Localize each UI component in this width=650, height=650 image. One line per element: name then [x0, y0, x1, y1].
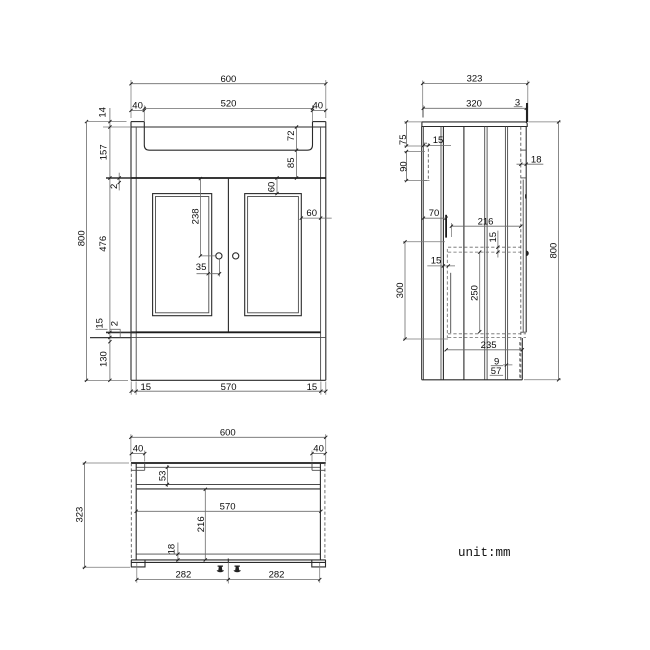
svg-text:282: 282: [175, 570, 191, 581]
svg-text:15: 15: [141, 382, 152, 393]
svg-text:323: 323: [467, 73, 483, 84]
svg-text:800: 800: [76, 230, 87, 246]
svg-text:800: 800: [548, 243, 559, 259]
svg-text:75: 75: [398, 135, 409, 146]
svg-text:570: 570: [221, 382, 237, 393]
svg-text:216: 216: [196, 516, 207, 532]
svg-text:157: 157: [99, 144, 110, 160]
svg-text:320: 320: [466, 98, 482, 109]
svg-text:60: 60: [306, 208, 317, 219]
svg-text:600: 600: [220, 74, 236, 85]
svg-text:15: 15: [488, 232, 499, 243]
svg-text:15: 15: [433, 135, 444, 146]
svg-text:2: 2: [109, 184, 120, 189]
svg-text:238: 238: [190, 208, 201, 224]
svg-text:72: 72: [286, 131, 297, 142]
svg-text:130: 130: [98, 351, 109, 367]
svg-text:216: 216: [478, 216, 494, 227]
svg-text:250: 250: [470, 285, 481, 301]
svg-text:70: 70: [429, 208, 440, 219]
svg-text:40: 40: [132, 101, 143, 112]
svg-text:60: 60: [267, 182, 278, 193]
svg-text:2: 2: [109, 321, 120, 326]
svg-text:300: 300: [395, 282, 406, 298]
svg-text:40: 40: [313, 101, 324, 112]
svg-text:600: 600: [220, 427, 236, 438]
svg-text:570: 570: [220, 501, 236, 512]
svg-text:85: 85: [286, 158, 297, 169]
svg-text:14: 14: [98, 107, 109, 118]
svg-text:323: 323: [75, 507, 86, 523]
svg-text:40: 40: [313, 443, 324, 454]
svg-text:40: 40: [133, 443, 144, 454]
svg-text:235: 235: [481, 340, 497, 351]
svg-text:520: 520: [221, 99, 237, 110]
svg-text:15: 15: [307, 382, 318, 393]
svg-text:282: 282: [269, 570, 285, 581]
svg-text:unit:mm: unit:mm: [458, 546, 511, 560]
svg-text:476: 476: [98, 236, 109, 252]
svg-text:15: 15: [95, 318, 106, 329]
svg-text:15: 15: [431, 255, 442, 266]
svg-text:18: 18: [166, 544, 177, 555]
svg-text:90: 90: [398, 161, 409, 172]
svg-text:35: 35: [196, 262, 207, 273]
svg-text:18: 18: [531, 154, 542, 165]
svg-text:53: 53: [158, 471, 169, 482]
